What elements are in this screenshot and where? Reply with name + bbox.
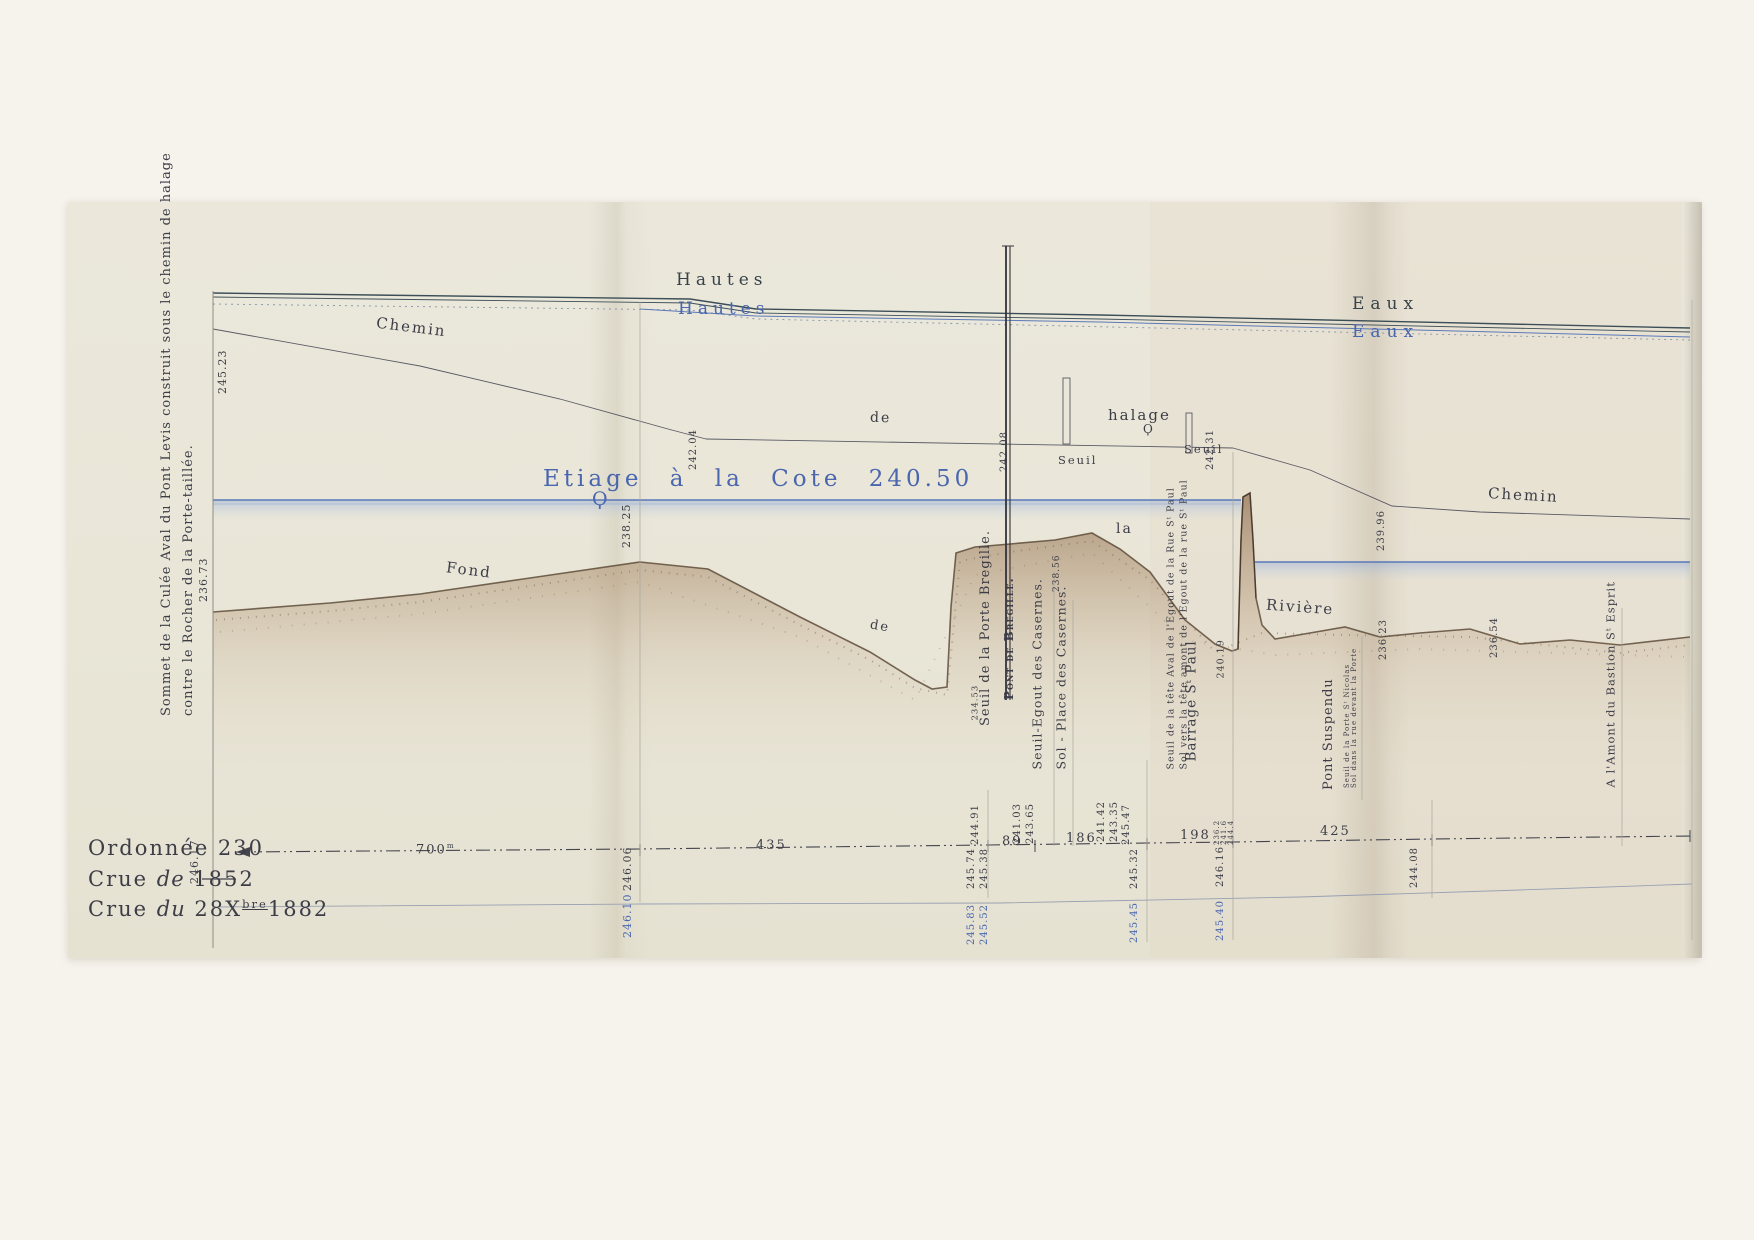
barrage-stpaul-value: 240.19	[1217, 639, 1227, 678]
elev-barrage-stack-3: 244.4	[1228, 820, 1235, 845]
elev-casernes-b: 243.65	[1026, 803, 1036, 844]
elev-chemin-suspendu: 239.96	[1377, 510, 1387, 551]
elev-bed-left: 236.73	[198, 558, 209, 603]
scanned-river-profile-plate: Hautes Hautes Eaux Eaux Etiage à la Cote…	[0, 0, 1754, 1240]
chemin-right-label: Chemin	[1488, 486, 1559, 505]
elev-chemin-seuil-right: 242.31	[1206, 429, 1216, 470]
elev-bregille-1882-b: 245.52	[980, 904, 990, 945]
barrage-stpaul-label: Barrage Sᵗ Paul	[1186, 640, 1200, 761]
elev-casernes-a: 241.03	[1013, 803, 1023, 844]
elev-chemin-start: 245.23	[217, 350, 228, 395]
elev-bed-suspendu: 236.23	[1379, 619, 1389, 660]
elev-stpaul-a: 241.42	[1097, 801, 1107, 842]
casernes-sol-label: Sol - Place des Casernes.	[1056, 586, 1069, 770]
halage-label: halage	[1108, 408, 1171, 423]
elev-bed-right: 236.54	[1490, 617, 1500, 658]
halage-flourish: Ϙ	[1143, 423, 1155, 435]
crue-1882-label: Crue du 28Xbre1882	[88, 899, 329, 920]
elev-bregille-above: 244.91	[971, 804, 981, 845]
elev-chemin-junction: 242.04	[689, 429, 699, 470]
elev-bregille-1882-a: 245.83	[967, 904, 977, 945]
bregille-seuil-label: Seuil de la Porte Bregille.	[979, 530, 992, 726]
eaux-upper-label: Eaux	[1352, 296, 1419, 313]
elev-chemin-bregille: 242.08	[1000, 431, 1010, 472]
seuil-post-left-label: Seuil	[1058, 455, 1097, 467]
elev-bregille-1852-b: 245.38	[980, 848, 990, 889]
hautes-upper-label: Hautes	[676, 272, 768, 289]
crue-1852-label: Crue de 1852	[88, 869, 255, 890]
margin-note-line2: contre le Rocher de la Porte-taillée.	[182, 444, 195, 716]
bregille-seuil-value: 234.53	[972, 685, 981, 721]
bregille-name-label: Pont de Bregille.	[1003, 577, 1015, 700]
elev-fold-1852: 246.06	[622, 847, 633, 892]
stpaul-seuil-label: Seuil de la tête Aval de l'Egout de la R…	[1167, 487, 1177, 769]
elev-stpaul-1882: 245.45	[1130, 902, 1140, 943]
fond-de-label: de	[869, 618, 891, 634]
paper-sheet	[68, 202, 1700, 958]
casernes-seuil-label: Seuil-Egout des Casernes.	[1032, 578, 1045, 769]
chemin-de-label: de	[870, 411, 892, 426]
elev-stpaul-1852: 245.32	[1130, 848, 1140, 889]
margin-note-line1: Sommet de la Culée Aval du Pont Levis co…	[160, 152, 173, 716]
distance-198: 198	[1180, 829, 1211, 842]
fond-la-label: la	[1116, 522, 1133, 536]
hautes-lower-label: Hautes	[678, 301, 770, 318]
bastion-label: A l'Amont du Bastion Sᵗ Esprit	[1606, 581, 1618, 787]
riviere-label: Rivière	[1266, 598, 1335, 618]
distance-435: 435	[756, 839, 787, 852]
elev-left-1852: 246.17	[189, 840, 200, 885]
distance-425: 425	[1320, 825, 1351, 838]
distance-186: 186	[1066, 832, 1097, 845]
elev-stpaul-b: 243.35	[1110, 801, 1120, 842]
elev-bregille-1852-a: 245.74	[967, 848, 977, 889]
pont-suspendu-label: Pont Suspendu	[1322, 678, 1335, 790]
etiage-flourish: Ϙ	[592, 490, 610, 509]
eaux-lower-label: Eaux	[1352, 324, 1419, 341]
elev-stpaul-c: 245.47	[1122, 804, 1132, 845]
elev-bed-peak: 238.25	[621, 504, 632, 549]
elev-fold-1882: 246.10	[622, 894, 633, 939]
distance-700m: 700m	[416, 842, 456, 856]
pont-suspendu-sol-label: Sol dans la rue devant la Porte	[1351, 648, 1358, 788]
elev-barrage-1852: 246.16	[1216, 846, 1226, 887]
elev-bastion-1852: 244.08	[1410, 847, 1420, 888]
ordonnee-label: Ordonnée 230	[88, 838, 264, 859]
seuil-post-right-label: Seuil	[1184, 444, 1223, 456]
elev-barrage-1882: 245.40	[1216, 900, 1226, 941]
